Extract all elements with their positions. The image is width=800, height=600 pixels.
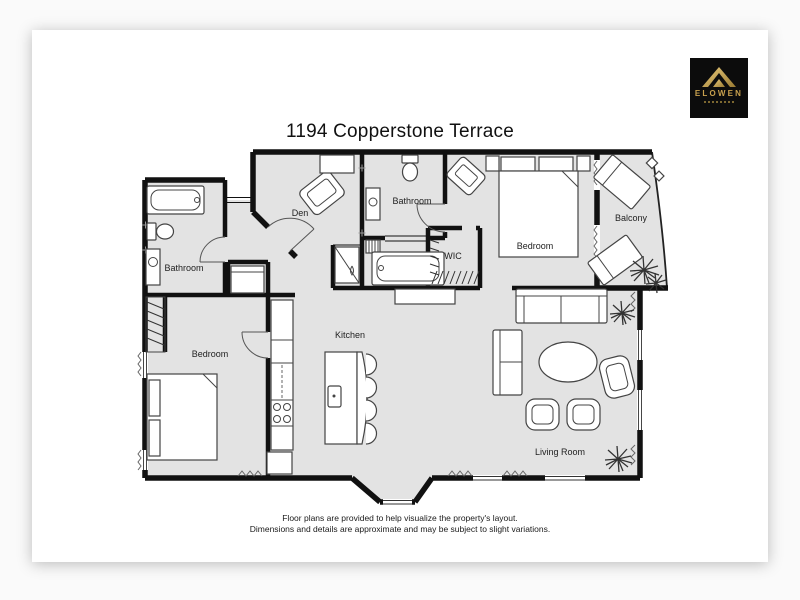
room-label-balcony: Balcony	[615, 213, 648, 223]
shower	[335, 247, 359, 283]
room-label-bathroom-left: Bathroom	[164, 263, 203, 273]
armchair-bottom-right	[567, 399, 600, 430]
disclaimer-line-2: Dimensions and details are approximate a…	[0, 524, 800, 535]
toilet-upper	[402, 155, 418, 181]
den-desk	[320, 155, 354, 173]
coffee-table	[539, 342, 597, 382]
kitchen-counter	[267, 300, 293, 474]
floor-plan: Den Bathroom Bathroom WIC Bedroom Balcon…	[0, 0, 800, 600]
bed-lower	[147, 374, 217, 460]
washer	[231, 266, 264, 293]
room-label-den: Den	[292, 208, 309, 218]
sofa-top	[516, 289, 607, 323]
room-label-living-room: Living Room	[535, 447, 585, 457]
room-label-wic: WIC	[444, 251, 462, 261]
sideboard	[395, 289, 455, 304]
sofa-left	[493, 330, 522, 395]
room-label-bedroom-lower: Bedroom	[192, 349, 229, 359]
kitchen-island	[325, 352, 367, 444]
toilet	[147, 223, 174, 240]
vanity-upper	[366, 188, 380, 220]
vanity-sink	[146, 249, 160, 285]
room-label-bathroom-upper: Bathroom	[392, 196, 431, 206]
screenshot-root: { "page": { "title": "1194 Copperstone T…	[0, 0, 800, 600]
room-label-kitchen: Kitchen	[335, 330, 365, 340]
bathtub	[147, 186, 204, 214]
disclaimer-line-1: Floor plans are provided to help visuali…	[0, 513, 800, 524]
radiator	[366, 240, 380, 253]
disclaimer: Floor plans are provided to help visuali…	[0, 513, 800, 535]
armchair-bottom-left	[526, 399, 559, 430]
room-label-bedroom-upper: Bedroom	[517, 241, 554, 251]
